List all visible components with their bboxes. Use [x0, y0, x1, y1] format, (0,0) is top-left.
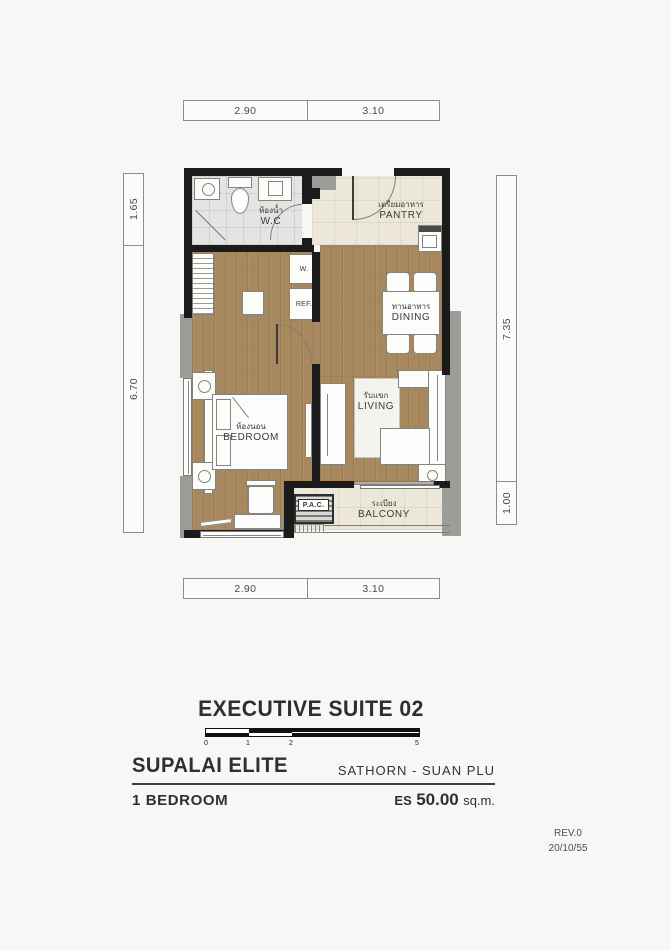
- balcony-sliding-door-lower: [360, 485, 440, 489]
- pillow: [216, 435, 231, 466]
- brand-row: SUPALAI ELITE SATHORN - SUAN PLU: [132, 752, 495, 778]
- ac-unit-label-box: P.A.C.: [298, 499, 329, 511]
- wc-sink-basin: [268, 181, 283, 196]
- pillow: [216, 399, 231, 430]
- wall-closet-right: [312, 252, 320, 322]
- scale-bar: 0 1 2 5: [205, 728, 420, 737]
- area-value: 50.00: [416, 790, 459, 809]
- area-unit: sq.m.: [463, 793, 495, 808]
- scale-seg-3-stripe: [292, 732, 419, 733]
- dining-chair: [386, 272, 410, 293]
- unit-info-row: 1 BEDROOM ES 50.00 sq.m.: [132, 789, 495, 811]
- revision-number: REV.0: [538, 826, 598, 841]
- revision-block: REV.0 20/10/55: [538, 826, 598, 856]
- wall-partition: [312, 364, 320, 486]
- sofa-cushion-line: [437, 375, 438, 461]
- dining-chair: [413, 333, 437, 354]
- titleblock-divider: [132, 783, 495, 785]
- floorplan-drawing: W. REF. ทานอาหาร DINING: [184, 168, 466, 550]
- desk-chair: [248, 486, 274, 514]
- floor-lamp: [427, 470, 438, 481]
- wall-wc-bottom: [184, 245, 314, 252]
- dim-top-right: 3.10: [307, 101, 439, 120]
- fridge-label: REF.: [296, 301, 312, 308]
- tv-line: [327, 394, 328, 456]
- bed: [212, 394, 288, 470]
- scale-seg-3: [292, 729, 419, 736]
- floorplan-page: 2.90 3.10 2.90 3.10 1.65 6.70 7.35 1.00: [0, 0, 671, 950]
- dim-left-bottom: 6.70: [124, 245, 143, 532]
- balcony-louvre: [294, 524, 324, 533]
- pantry-sink: [422, 235, 437, 248]
- scale-seg-1: [206, 733, 249, 737]
- wc-washbasin: [194, 178, 220, 200]
- dimension-strip-right: 7.35 1.00: [496, 175, 517, 525]
- unit-title: EXECUTIVE SUITE 02: [167, 696, 455, 722]
- dining-chair: [386, 333, 410, 354]
- revision-date: 20/10/55: [538, 841, 598, 856]
- dim-top-left: 2.90: [184, 101, 307, 120]
- scale-tick-1: 1: [246, 740, 250, 747]
- bedroom-window: [200, 531, 284, 538]
- tv-console-bedroom: [305, 403, 312, 458]
- left-wall-fin-upper: [180, 314, 192, 378]
- scale-tick-5: 5: [415, 740, 419, 747]
- wall-right: [442, 168, 450, 375]
- wc-sink-counter: [258, 177, 292, 201]
- left-wall-fin-lower: [180, 476, 192, 538]
- nightstand-lamp: [198, 470, 211, 483]
- dim-bottom-left: 2.90: [184, 579, 307, 598]
- dim-right-top: 7.35: [497, 176, 516, 481]
- pantry-counter: [418, 225, 442, 252]
- dim-right-bottom: 1.00: [497, 481, 516, 524]
- dim-bottom-right: 3.10: [307, 579, 439, 598]
- wall-left: [184, 168, 192, 318]
- unit-type: 1 BEDROOM: [132, 792, 228, 809]
- wall-wc-right-upper: [302, 168, 312, 204]
- nightstand-lamp: [198, 380, 211, 393]
- wardrobe: [192, 253, 214, 315]
- dim-left-top: 1.65: [124, 174, 143, 245]
- dimension-strip-bottom: 2.90 3.10: [183, 578, 440, 599]
- project-location: SATHORN - SUAN PLU: [338, 763, 495, 778]
- pantry-counter-top: [419, 226, 441, 232]
- washer-label: W.: [300, 266, 309, 273]
- ac-unit-label: P.A.C.: [303, 502, 325, 509]
- scale-tick-0: 0: [204, 740, 208, 747]
- ac-compressor-unit: P.A.C.: [294, 494, 334, 524]
- sofa-back: [428, 370, 446, 465]
- wc-washbasin-bowl: [202, 183, 215, 196]
- window-mullion: [188, 381, 189, 474]
- brand-name: SUPALAI ELITE: [132, 754, 288, 778]
- scale-seg-2: [249, 729, 292, 733]
- blanket-fold-line: [232, 397, 249, 418]
- unit-area: ES 50.00 sq.m.: [394, 790, 495, 810]
- bedroom-side-window: [183, 378, 192, 476]
- wall-top-left: [184, 168, 342, 176]
- balcony-railing: [324, 525, 450, 533]
- sofa-chaise: [380, 428, 430, 465]
- dimension-strip-top: 2.90 3.10: [183, 100, 440, 121]
- scale-tick-2: 2: [289, 740, 293, 747]
- wall-living-bottom: [284, 481, 354, 488]
- dimension-strip-left: 1.65 6.70: [123, 173, 144, 533]
- toilet-tank: [228, 177, 252, 188]
- window-mullion: [203, 535, 281, 536]
- bedroom-cabinet: [242, 291, 264, 315]
- dining-chair: [413, 272, 437, 293]
- area-prefix: ES: [394, 793, 411, 808]
- desk: [234, 514, 281, 529]
- tv-console-living: [320, 383, 346, 465]
